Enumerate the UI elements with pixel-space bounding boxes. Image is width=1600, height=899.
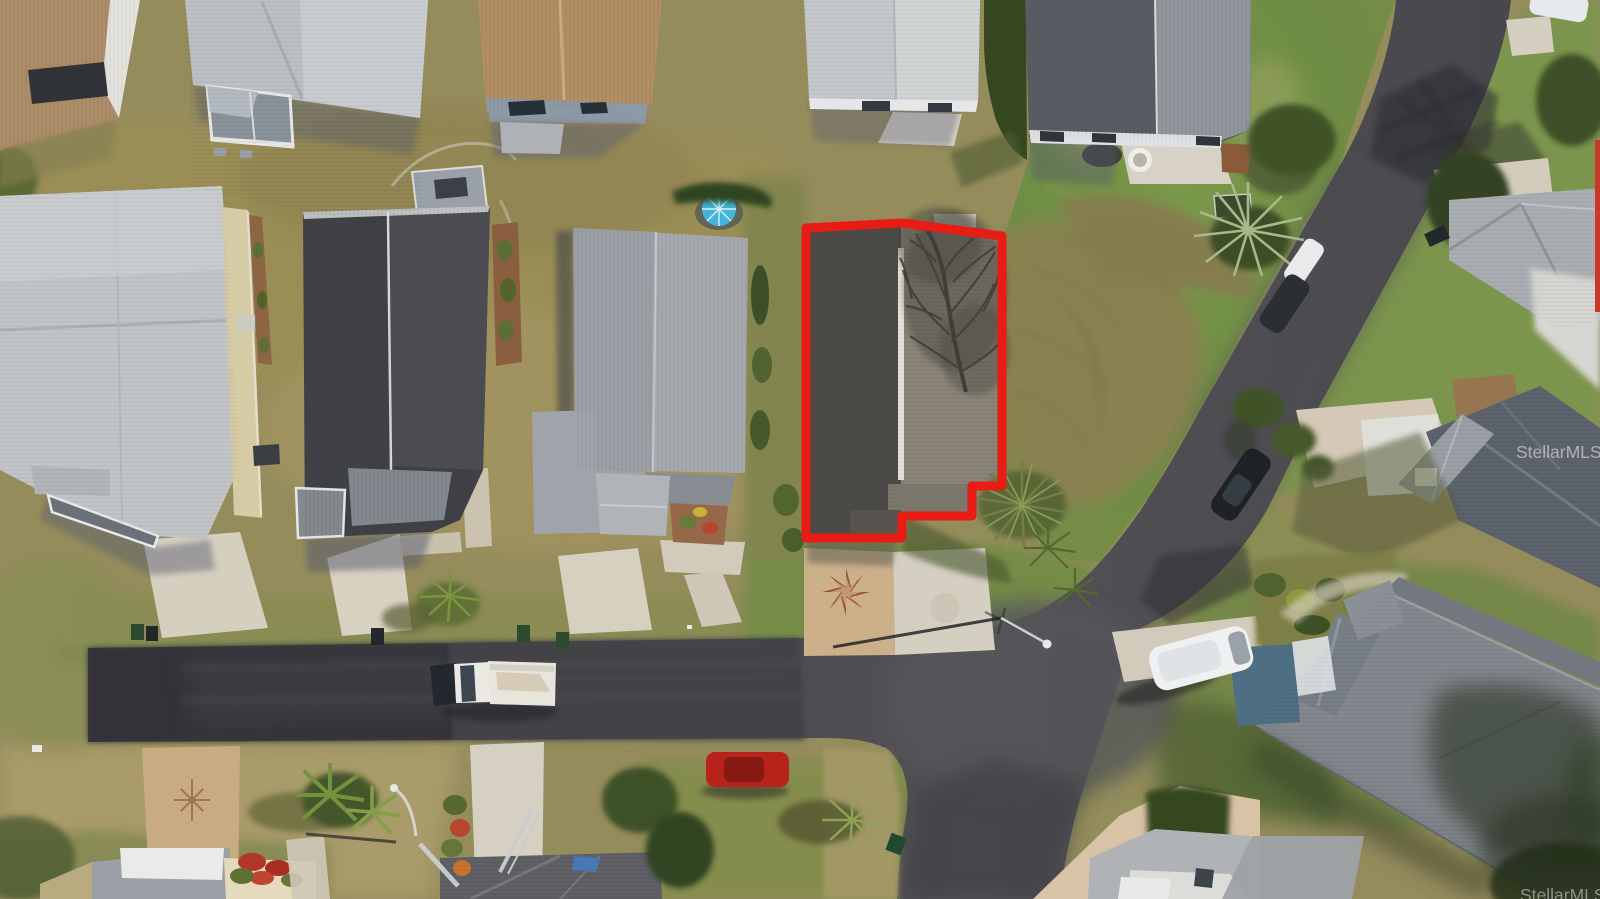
svg-text:StellarMLS: StellarMLS xyxy=(1516,442,1600,462)
svg-text:StellarMLS: StellarMLS xyxy=(1520,885,1600,899)
